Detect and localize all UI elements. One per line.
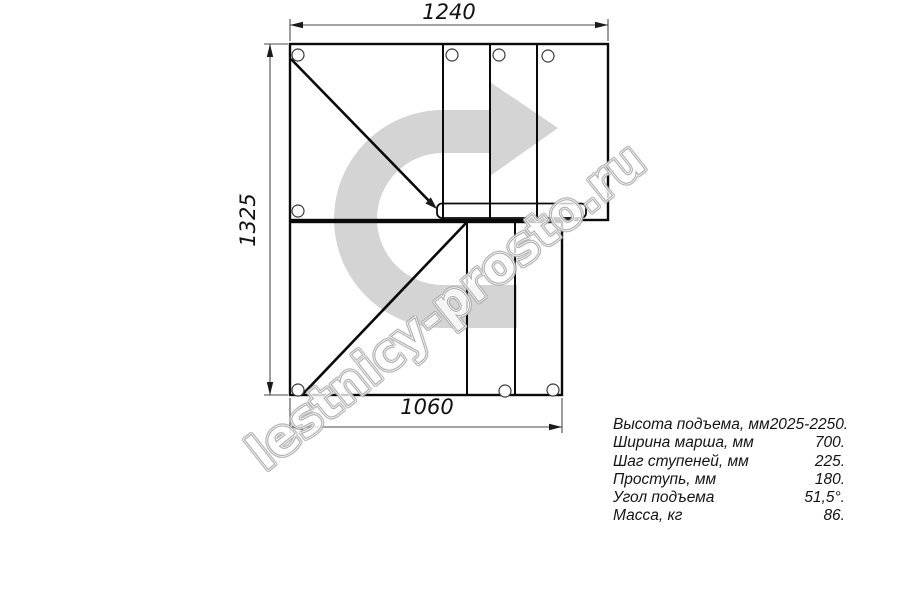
mount-hole bbox=[292, 205, 304, 217]
staircase-drawing-page: 1240 1325 1060 lestnicy-prosto.ru lestni… bbox=[0, 0, 900, 600]
spec-row: Угол подъема 51,5°. bbox=[613, 489, 845, 507]
mount-hole bbox=[542, 50, 554, 62]
spec-row: Проступь, мм 180. bbox=[613, 471, 845, 489]
dimension-left-label: 1325 bbox=[236, 193, 260, 246]
spec-value: 2025-2250. bbox=[770, 416, 848, 434]
spec-value: 225. bbox=[815, 453, 845, 471]
spec-label: Шаг ступеней, мм bbox=[613, 453, 749, 471]
dimension-bottom-label: 1060 bbox=[400, 395, 453, 419]
spec-value: 86. bbox=[823, 507, 845, 525]
spec-row: Ширина марша, мм 700. bbox=[613, 434, 845, 452]
dimension-top: 1240 bbox=[290, 0, 608, 41]
spec-value: 180. bbox=[815, 471, 845, 489]
spec-value: 700. bbox=[815, 434, 845, 452]
spec-row: Высота подъема, мм 2025-2250. bbox=[613, 416, 845, 434]
mount-hole bbox=[493, 49, 505, 61]
spec-row: Масса, кг 86. bbox=[613, 507, 845, 525]
spec-table: Высота подъема, мм 2025-2250. Ширина мар… bbox=[613, 416, 845, 526]
mount-hole bbox=[292, 49, 304, 61]
site-watermark: lestnicy-prosto.ru lestnicy-prosto.ru le… bbox=[236, 131, 656, 481]
watermark-text-innerline: lestnicy-prosto.ru bbox=[236, 131, 656, 481]
dimension-top-label: 1240 bbox=[422, 0, 475, 24]
spec-label: Проступь, мм bbox=[613, 471, 716, 489]
spec-row: Шаг ступеней, мм 225. bbox=[613, 453, 845, 471]
mount-hole bbox=[499, 385, 511, 397]
dimension-left: 1325 bbox=[236, 44, 288, 395]
spec-label: Масса, кг bbox=[613, 507, 682, 525]
spec-label: Угол подъема bbox=[613, 489, 714, 507]
spec-label: Высота подъема, мм bbox=[613, 416, 770, 434]
spec-value: 51,5°. bbox=[804, 489, 845, 507]
mount-hole bbox=[446, 49, 458, 61]
spec-label: Ширина марша, мм bbox=[613, 434, 754, 452]
mount-hole bbox=[547, 384, 559, 396]
